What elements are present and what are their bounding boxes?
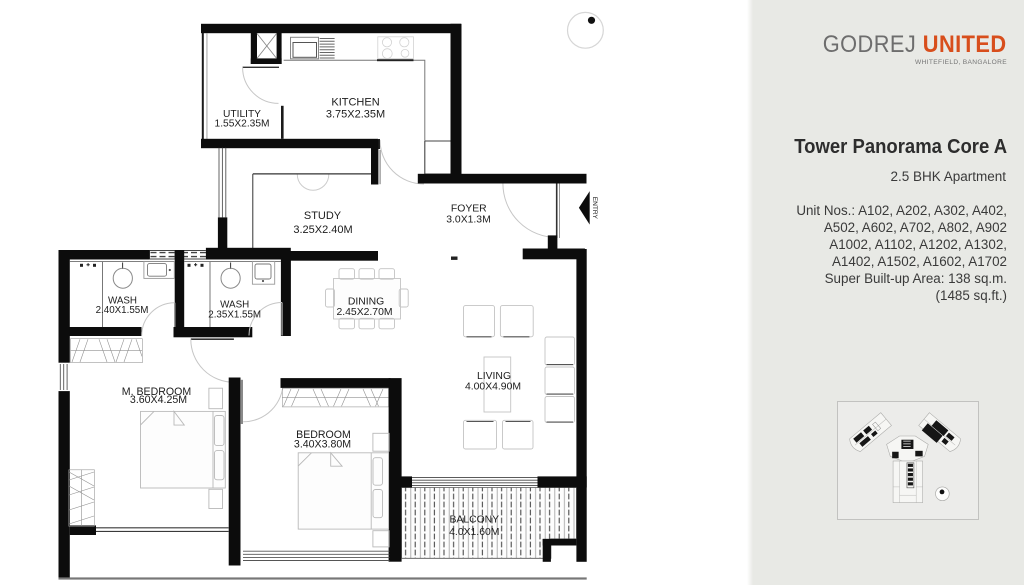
svg-text:DINING: DINING [348, 296, 384, 307]
svg-text:3.60X4.25M: 3.60X4.25M [130, 394, 187, 406]
svg-text:3.25X2.40M: 3.25X2.40M [293, 224, 352, 236]
svg-text:FOYER: FOYER [451, 204, 487, 215]
svg-text:KITCHEN: KITCHEN [331, 97, 379, 109]
svg-text:2.45X2.70M: 2.45X2.70M [336, 307, 392, 318]
svg-text:ENTRY: ENTRY [591, 197, 598, 220]
svg-text:3.0X1.3M: 3.0X1.3M [446, 214, 490, 225]
svg-text:3.40X3.80M: 3.40X3.80M [294, 438, 351, 450]
svg-text:2.35X1.55M: 2.35X1.55M [208, 309, 261, 320]
svg-text:4.00X4.90M: 4.00X4.90M [465, 381, 521, 392]
svg-text:BALCONY: BALCONY [449, 515, 499, 526]
svg-text:2.40X1.55M: 2.40X1.55M [96, 305, 149, 316]
svg-text:1.55X2.35M: 1.55X2.35M [215, 119, 270, 130]
svg-text:3.75X2.35M: 3.75X2.35M [326, 109, 385, 121]
svg-text:4.0X1.60M: 4.0X1.60M [449, 527, 499, 538]
svg-text:STUDY: STUDY [304, 210, 342, 222]
svg-text:LIVING: LIVING [477, 371, 511, 382]
